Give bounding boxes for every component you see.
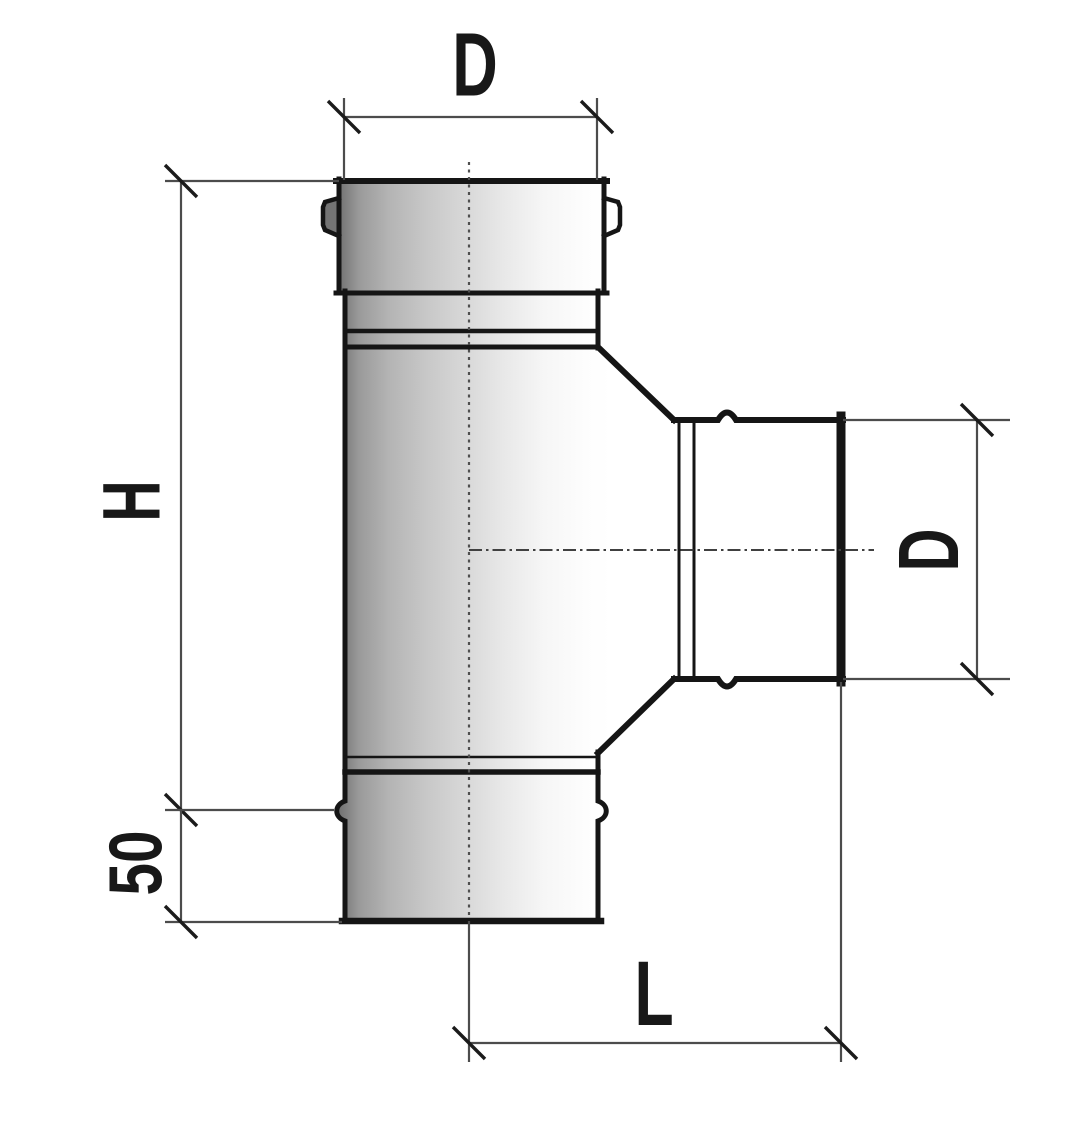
dim-label-branch-diameter: D bbox=[881, 529, 976, 572]
dim-label-top-diameter: D bbox=[452, 16, 497, 116]
drawing-canvas: D H 50 D L bbox=[0, 0, 1065, 1122]
dim-label-height: H bbox=[86, 480, 178, 521]
dim-label-socket-offset: 50 bbox=[94, 830, 178, 895]
dim-label-branch-length: L bbox=[634, 942, 673, 1045]
tee-fitting-drawing: D H 50 D L bbox=[0, 0, 1065, 1122]
